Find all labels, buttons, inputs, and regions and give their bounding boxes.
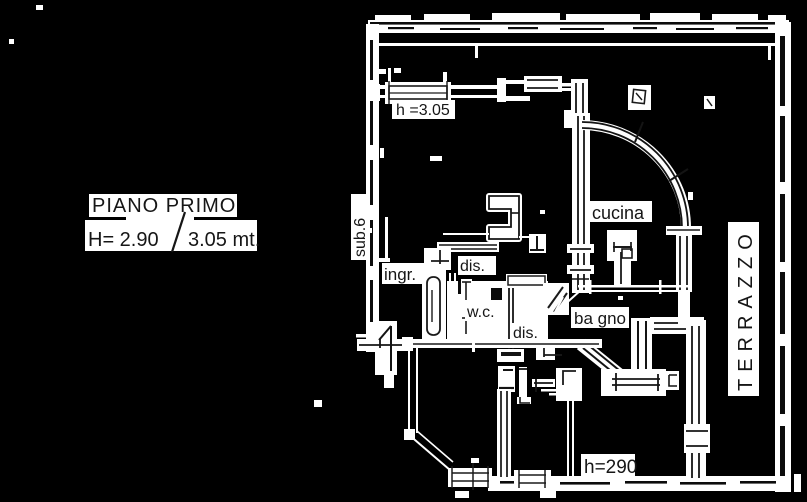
svg-text:PIANO PRIMO: PIANO PRIMO — [92, 195, 236, 217]
svg-text:ba gno: ba gno — [574, 309, 626, 328]
svg-text:h=290: h=290 — [584, 457, 637, 478]
svg-text:H= 2.90: H= 2.90 — [88, 229, 159, 251]
svg-text:ingr.: ingr. — [384, 265, 416, 284]
svg-text:cucina: cucina — [592, 203, 645, 223]
svg-text:w.c.: w.c. — [466, 304, 495, 321]
svg-text:h =3.05: h =3.05 — [396, 102, 450, 119]
svg-text:TERRAZZO: TERRAZZO — [735, 227, 757, 391]
svg-text:3.05 mt.: 3.05 mt. — [188, 229, 260, 251]
svg-text:dis.: dis. — [460, 258, 485, 275]
